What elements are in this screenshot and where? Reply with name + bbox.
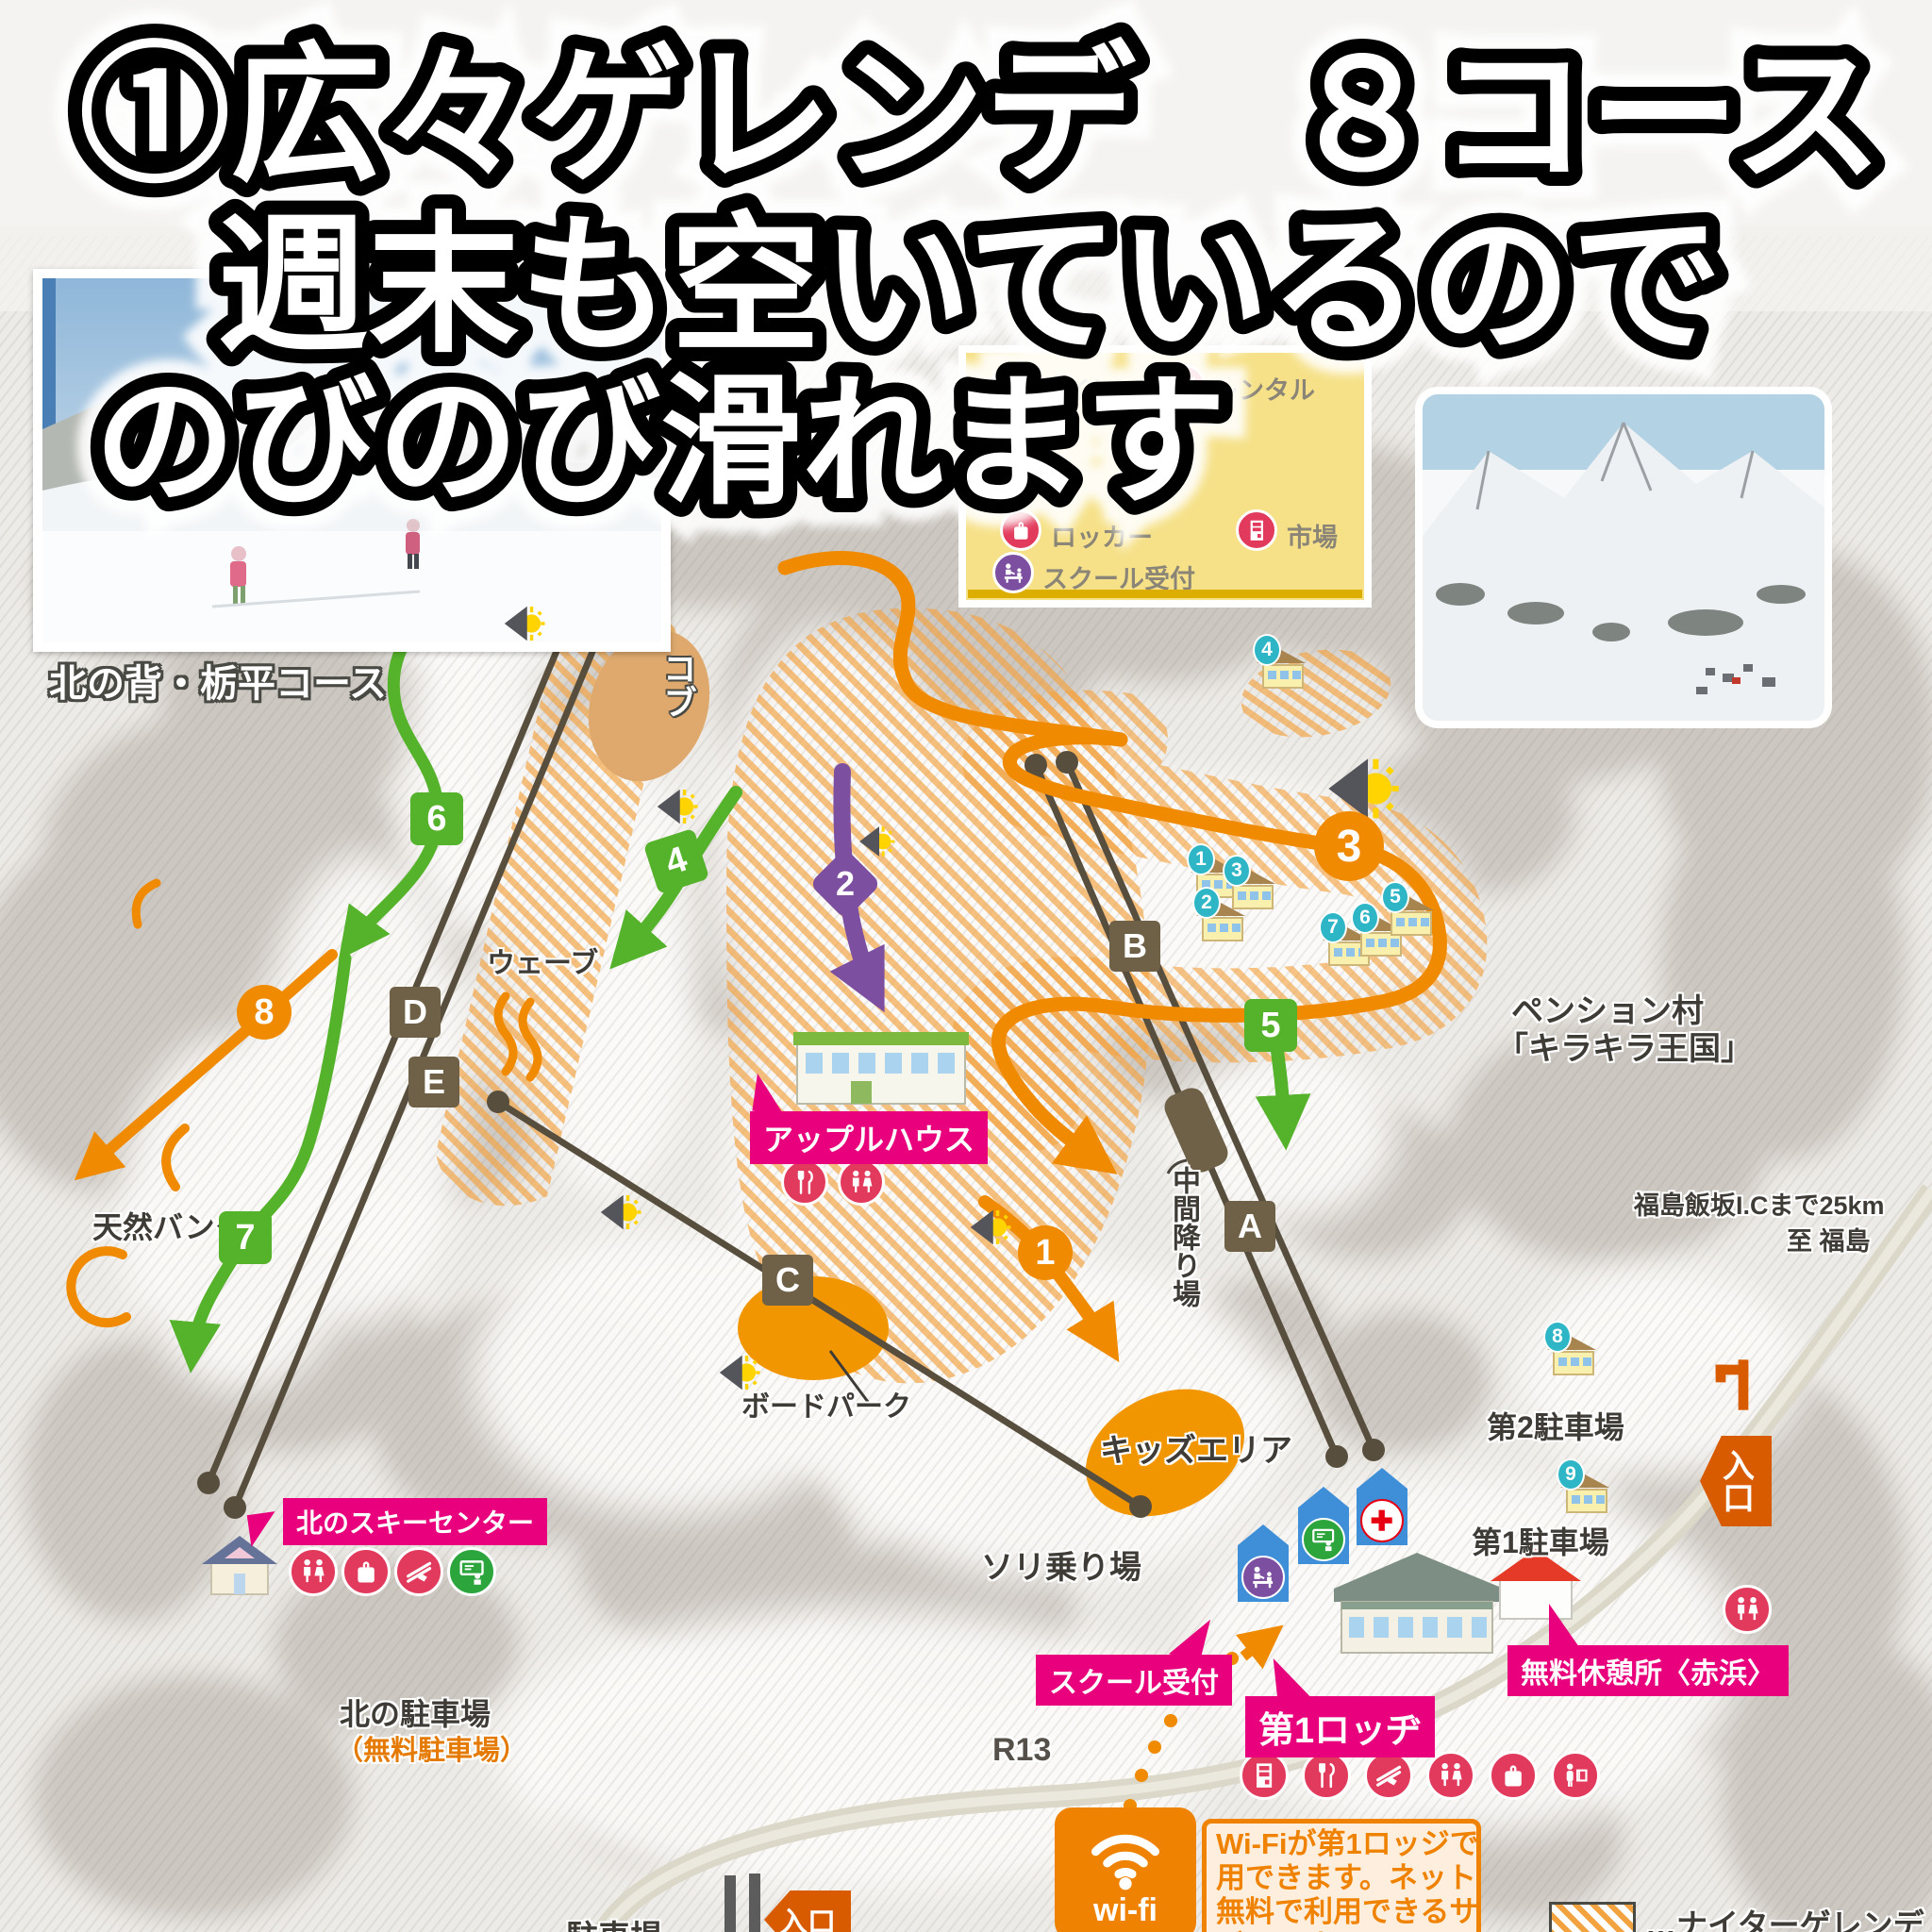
legend-item-label: レンタル <box>1213 370 1315 407</box>
restaurant-icon <box>781 1158 828 1206</box>
changing-room-icon <box>1551 1751 1600 1800</box>
night-slope-legend-swatch <box>1549 1902 1636 1932</box>
pension-house-8: 8 <box>1553 1336 1598 1375</box>
wifi-badge: wi-fi <box>1055 1807 1196 1932</box>
access-distance-label: 福島飯坂I.Cまで25km <box>1634 1185 1885 1222</box>
ski-school-icon <box>447 1547 496 1596</box>
rest-house-label: 無料休憩所〈赤浜〉 <box>1507 1645 1789 1696</box>
rest-house-pointer <box>1549 1604 1579 1647</box>
north-parking-free-label: （無料駐車場） <box>336 1728 527 1768</box>
parking-2-label: 第2駐車場 <box>1487 1404 1624 1447</box>
wifi-info-line: 用できます。ネットが <box>1216 1861 1467 1895</box>
locker-icon <box>1489 1751 1538 1800</box>
rental-icon <box>1164 364 1206 406</box>
wifi-info-box: Wi-Fiが第1ロッジで使 用できます。ネットが 無料で利用できるサー ビスです… <box>1202 1819 1481 1932</box>
route-r13-label: R13 <box>992 1732 1051 1769</box>
lift-marker-e: E <box>408 1057 459 1108</box>
course-marker-8: 8 <box>237 985 291 1040</box>
night-ski-icon <box>854 823 895 860</box>
market-icon <box>1236 509 1277 551</box>
night-ski-icon <box>498 602 545 645</box>
apple-house-label: アップルハウス <box>750 1111 988 1164</box>
mid-station-label: 中間降り場 <box>1162 1166 1204 1307</box>
locker-icon <box>1000 509 1041 551</box>
school-reception-icon <box>992 552 1034 593</box>
pension-house-5: 5 <box>1391 896 1436 936</box>
toilet-icon <box>838 1158 885 1206</box>
photo-north-course <box>33 269 671 652</box>
board-park-label: ボードパーク <box>741 1383 911 1424</box>
course-marker-7: 7 <box>219 1211 272 1264</box>
wifi-info-line: Wi-Fiが第1ロッジで使 <box>1216 1827 1467 1861</box>
lift-marker-b: B <box>1109 921 1160 972</box>
toilet-icon <box>1426 1751 1475 1800</box>
lift-marker-c: C <box>762 1255 813 1306</box>
pension-house-2: 2 <box>1202 902 1247 941</box>
restaurant-icon <box>1302 1751 1351 1800</box>
lodge-1-label: 第1ロッヂ <box>1245 1696 1435 1757</box>
lift-marker-d: D <box>390 987 441 1038</box>
locker-icon <box>341 1547 391 1596</box>
rental-icon <box>1364 1751 1413 1800</box>
apple-house-building <box>793 1032 969 1104</box>
course-marker-6: 6 <box>410 792 463 845</box>
pension-house-4: 4 <box>1262 649 1307 689</box>
course-marker-3: 3 <box>1314 811 1384 881</box>
wifi-badge-label: wi-fi <box>1093 1892 1158 1929</box>
photo-caption: 北の背・栃平コース <box>49 653 387 708</box>
vending-icon <box>1240 1751 1289 1800</box>
photo-resort-panorama <box>1415 387 1832 728</box>
facilities-legend-box: トイレ レンタル ロッカー 市場 スクール受付 <box>958 345 1372 608</box>
course-marker-1: 1 <box>1018 1225 1073 1280</box>
rental-icon <box>394 1547 443 1596</box>
wave-label: ウェーブ <box>487 940 598 981</box>
school-reception-label: スクール受付 <box>1036 1655 1232 1706</box>
night-slope-legend-label: …ナイターゲレンデ <box>1645 1900 1924 1932</box>
lodge-1-pointer <box>1274 1655 1312 1702</box>
school-reception-icon <box>1241 1556 1285 1599</box>
kids-area-label: キッズエリア <box>1100 1424 1292 1471</box>
night-ski-icon <box>594 1191 641 1234</box>
wifi-icon <box>1080 1817 1171 1896</box>
north-ski-center-pointer <box>247 1511 279 1547</box>
bottom-cut-label: 駐車場 <box>566 1911 662 1932</box>
legend-item-label: 市場 <box>1287 517 1338 554</box>
apple-house-pointer <box>752 1074 789 1115</box>
course-marker-5: 5 <box>1244 999 1297 1052</box>
lift-marker-a: A <box>1224 1201 1275 1252</box>
wifi-info-line: 無料で利用できるサー <box>1216 1895 1467 1929</box>
entrance-gate-icon <box>1706 1355 1766 1415</box>
parking-1-label: 第1駐車場 <box>1472 1519 1609 1562</box>
toilet-icon <box>1723 1585 1772 1634</box>
toilet-icon <box>289 1547 338 1596</box>
night-ski-icon <box>964 1206 1011 1249</box>
toilet-icon <box>991 364 1032 406</box>
legend-item-label: トイレ <box>1040 370 1116 407</box>
ski-resort-trail-map-poster: 北の背・栃平コース トイレ レンタル ロッカー 市場 スクール受付 ウェーブ コ… <box>0 0 1932 1932</box>
night-ski-icon <box>713 1351 760 1394</box>
sled-area-label: ソリ乗り場 <box>981 1541 1141 1588</box>
legend-item-label: ロッカー <box>1051 517 1153 554</box>
north-ski-center-label: 北のスキーセンター <box>283 1498 547 1545</box>
night-ski-icon <box>651 785 698 828</box>
access-direction-label: 至 福島 <box>1787 1221 1871 1257</box>
board-park-blob <box>738 1276 889 1380</box>
moguls-label: コブ <box>653 651 702 719</box>
first-aid-cross-icon <box>1360 1499 1404 1542</box>
legend-bottom-strip <box>968 590 1362 598</box>
ski-school-icon <box>1302 1518 1345 1561</box>
pension-house-9: 9 <box>1566 1474 1611 1513</box>
pension-village-label-2: 「キラキラ王国」 <box>1496 1023 1753 1069</box>
